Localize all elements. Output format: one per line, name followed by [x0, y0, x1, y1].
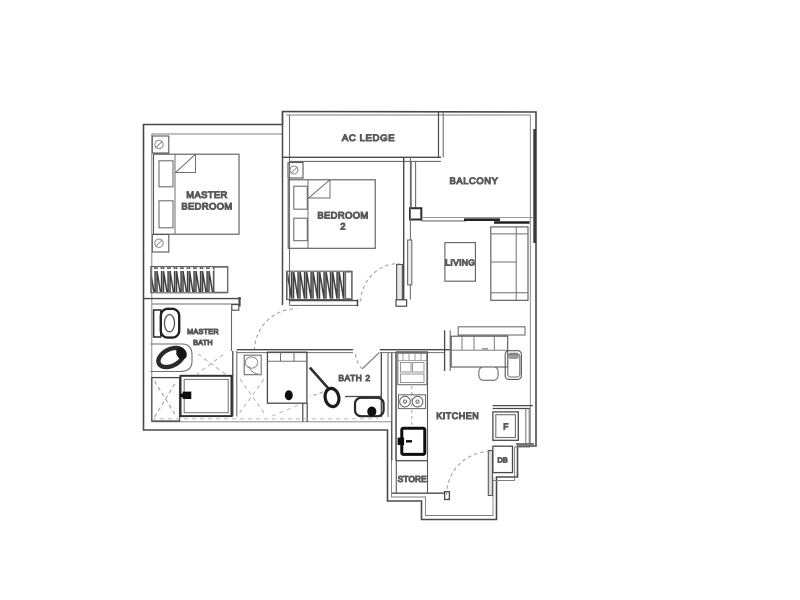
svg-text:BATH 2: BATH 2	[338, 373, 370, 383]
svg-text:STORE: STORE	[398, 475, 427, 484]
svg-text:DB: DB	[497, 456, 507, 465]
svg-text:AC LEDGE: AC LEDGE	[342, 133, 395, 144]
svg-text:BATH: BATH	[193, 338, 213, 347]
svg-text:LIVING: LIVING	[445, 258, 475, 268]
svg-text:MASTER: MASTER	[186, 189, 227, 200]
svg-text:2: 2	[340, 220, 346, 231]
svg-text:MASTER: MASTER	[187, 327, 219, 336]
svg-text:BALCONY: BALCONY	[449, 175, 498, 186]
svg-text:BEDROOM: BEDROOM	[317, 209, 368, 220]
svg-text:F: F	[503, 422, 508, 432]
svg-text:KITCHEN: KITCHEN	[436, 411, 479, 421]
svg-text:BEDROOM: BEDROOM	[181, 200, 232, 211]
